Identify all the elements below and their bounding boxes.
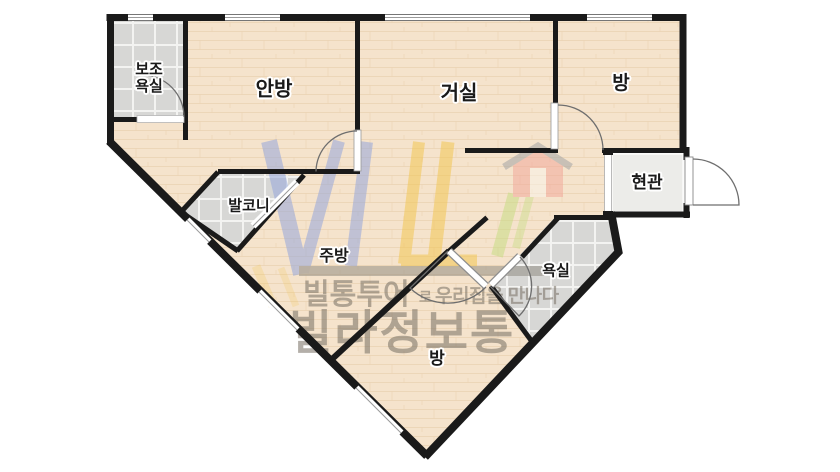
- room-label-entrance: 현관: [631, 173, 662, 193]
- window-top-4: [587, 15, 652, 21]
- room-label-balcony: 발코니: [228, 197, 269, 214]
- room-label-aux-bathroom: 보조욕실: [130, 61, 168, 96]
- house-door: [530, 168, 546, 197]
- floor-plan-drawing: 빌통투어 로 우리집을 만나다 빌라정보통: [0, 0, 840, 472]
- front-door-arc: [693, 159, 739, 205]
- entrance-partition: [603, 148, 613, 218]
- window-top-2: [225, 15, 280, 21]
- window-top-1: [128, 15, 153, 21]
- room-label-living-room: 거실: [441, 83, 478, 106]
- room-label-bathroom: 욕실: [542, 262, 570, 279]
- front-door: [685, 157, 739, 205]
- floor-plan-canvas: 빌통투어 로 우리집을 만나다 빌라정보통: [0, 0, 840, 472]
- room-label-bedroom-bottom: 방: [429, 349, 445, 369]
- room-label-master-bedroom: 안방: [256, 79, 293, 102]
- room-label-bedroom-right: 방: [612, 73, 629, 95]
- floors: [109, 17, 687, 456]
- window-top-3: [385, 15, 530, 21]
- room-label-kitchen: 주방: [319, 248, 348, 266]
